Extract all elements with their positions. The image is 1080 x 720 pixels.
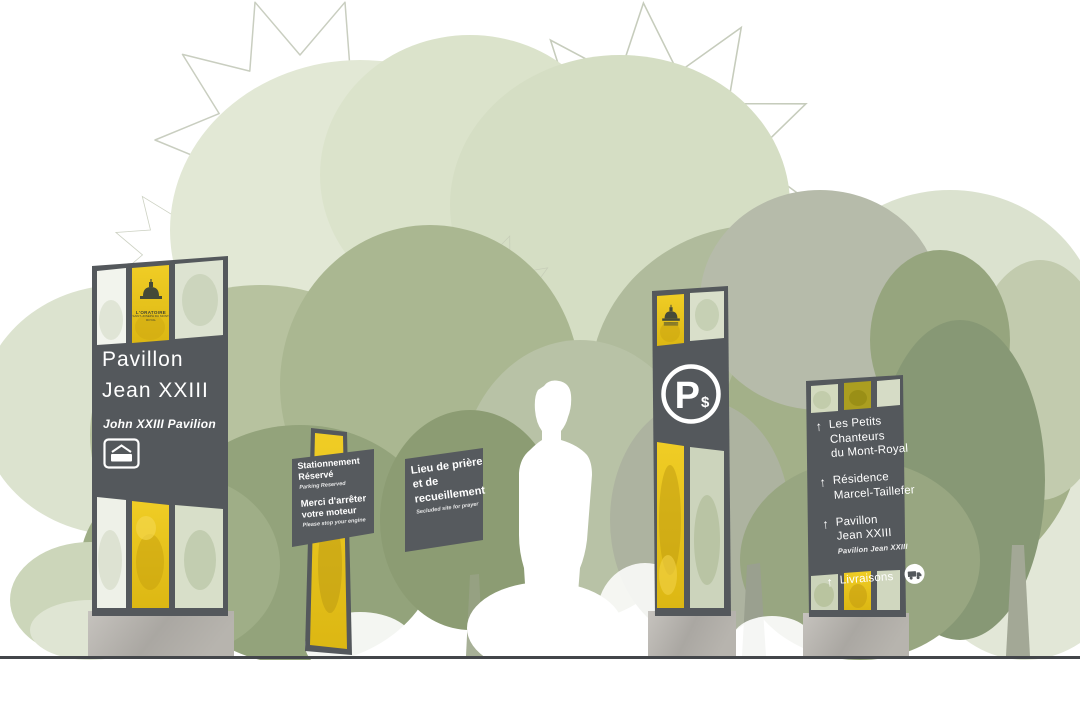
- directory-item-sublabel: Pavilion Jean XXIII: [837, 542, 908, 556]
- directory-item-label: Les Petits Chanteurs du Mont-Royal: [828, 413, 908, 462]
- directory-item: ↑ Résidence Marcel-Taillefer: [819, 468, 918, 504]
- up-arrow-icon: ↑: [826, 574, 834, 590]
- delivery-truck-icon: [904, 562, 927, 589]
- parking-plaque-text: Stationnement Réservé Parking Reserved M…: [297, 454, 381, 528]
- concrete-base: [803, 613, 909, 656]
- prayer-panel-text: Lieu de prière et de recueillement Seclu…: [410, 454, 490, 515]
- up-arrow-icon: ↑: [819, 475, 827, 491]
- up-arrow-icon: ↑: [815, 419, 823, 435]
- pavilion-subtitle-en: John XXIII Pavilion: [103, 417, 216, 431]
- directory-item-label: Pavillon Jean XXIII Pavilion Jean XXIII: [835, 511, 908, 557]
- directory-item-label: Résidence Marcel-Taillefer: [832, 468, 915, 503]
- directory-list: ↑ Les Petits Chanteurs du Mont-Royal ↑ R…: [815, 412, 925, 607]
- concrete-base: [648, 611, 736, 656]
- directory-item-label: Livraisons: [839, 570, 894, 588]
- oratoire-logo: L'ORATOIRE SAINT-JOSEPH DU MONT-ROYAL: [130, 310, 172, 323]
- oratoire-logo-subtitle: SAINT-JOSEPH DU MONT-ROYAL: [130, 315, 172, 322]
- ground-line: [0, 656, 1080, 659]
- parking-dollar: $: [701, 394, 709, 411]
- concrete-base: [88, 611, 234, 658]
- paid-parking-pylon-structure: [648, 286, 736, 656]
- pavilion-title-line2: Jean XXIII: [102, 380, 209, 401]
- directory-item: ↑ Pavillon Jean XXIII Pavilion Jean XXII…: [822, 510, 922, 558]
- paid-parking-mark: P $: [672, 374, 712, 414]
- up-arrow-icon: ↑: [822, 516, 830, 532]
- directory-item: ↑ Les Petits Chanteurs du Mont-Royal: [815, 412, 915, 463]
- signage-elevation-illustration: Pavillon Jean XXIII John XXIII Pavilion …: [0, 0, 1080, 720]
- bed-icon: [103, 438, 140, 474]
- directory-item: ↑ Livraisons: [826, 562, 925, 595]
- parking-letter: P: [675, 378, 700, 414]
- pavilion-title-line1: Pavillon: [102, 349, 184, 370]
